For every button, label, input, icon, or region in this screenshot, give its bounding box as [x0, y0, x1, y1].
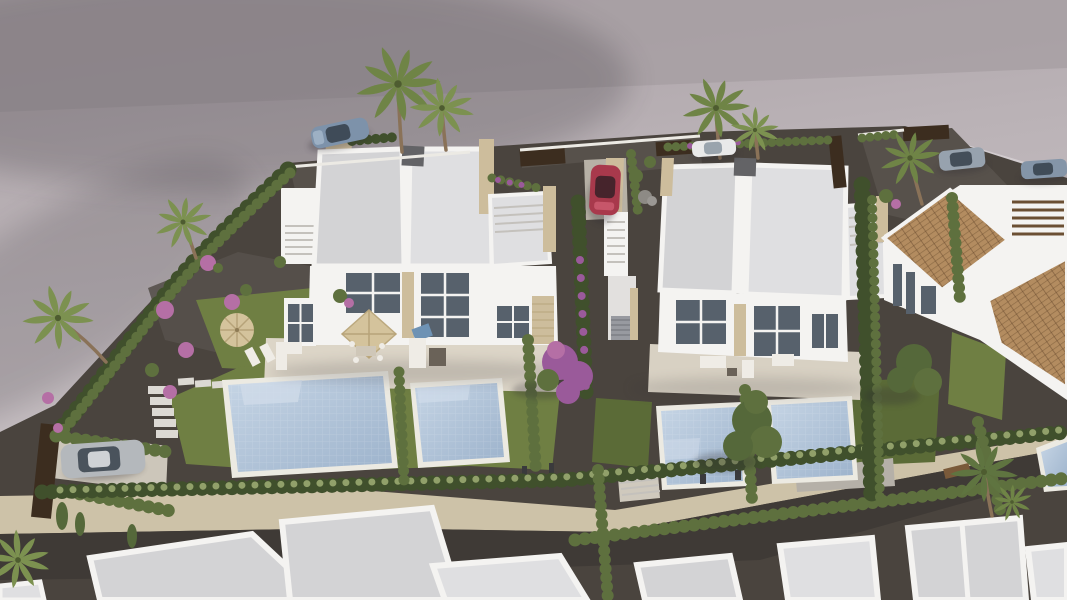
flat-roof-house — [637, 556, 740, 600]
outdoor-kitchen — [409, 338, 426, 368]
pool-2 — [410, 378, 510, 468]
roof-panel — [314, 149, 404, 266]
flat-roof-house — [433, 556, 587, 600]
cypress-tree — [75, 512, 85, 536]
lawn — [592, 398, 652, 468]
sofa — [700, 356, 726, 368]
chair — [349, 341, 355, 347]
roof-panel — [746, 165, 846, 298]
chair — [379, 343, 385, 349]
travertine-strip — [402, 272, 414, 338]
pergola — [1008, 196, 1066, 242]
corner-sofa — [276, 342, 302, 354]
chair — [353, 357, 359, 363]
travertine-strip — [734, 304, 746, 356]
flat-roof-house — [1028, 545, 1067, 600]
chimney — [734, 158, 757, 177]
aerial-development-render: Aerial 3D architectural render of a mode… — [0, 0, 1067, 600]
cypress-tree — [56, 502, 68, 530]
dining-table — [356, 346, 376, 356]
window — [497, 306, 529, 338]
flat-roof-house — [0, 582, 44, 600]
window — [288, 304, 313, 342]
corner-sofa — [276, 354, 287, 370]
flat-roof-house — [282, 508, 460, 600]
round-parasol — [220, 313, 254, 347]
window — [754, 306, 800, 356]
travertine-parapet — [660, 158, 674, 196]
window — [812, 314, 838, 348]
cypress-tree — [127, 524, 137, 548]
sofa — [772, 354, 794, 366]
fence-panel — [903, 125, 950, 141]
chair — [377, 355, 383, 361]
sofa — [742, 360, 754, 378]
window — [676, 300, 726, 344]
front-hedge — [862, 134, 900, 138]
render-canvas — [0, 0, 1067, 600]
hedge-row — [399, 372, 404, 480]
villa-2-side — [608, 276, 638, 340]
villa-1-roof-terrace — [490, 186, 556, 266]
planter-box — [429, 348, 446, 366]
pool-1 — [222, 371, 398, 478]
flat-roof-house — [780, 538, 878, 600]
window — [346, 273, 400, 313]
gray-car — [1017, 158, 1067, 186]
coffee-table — [727, 368, 737, 376]
